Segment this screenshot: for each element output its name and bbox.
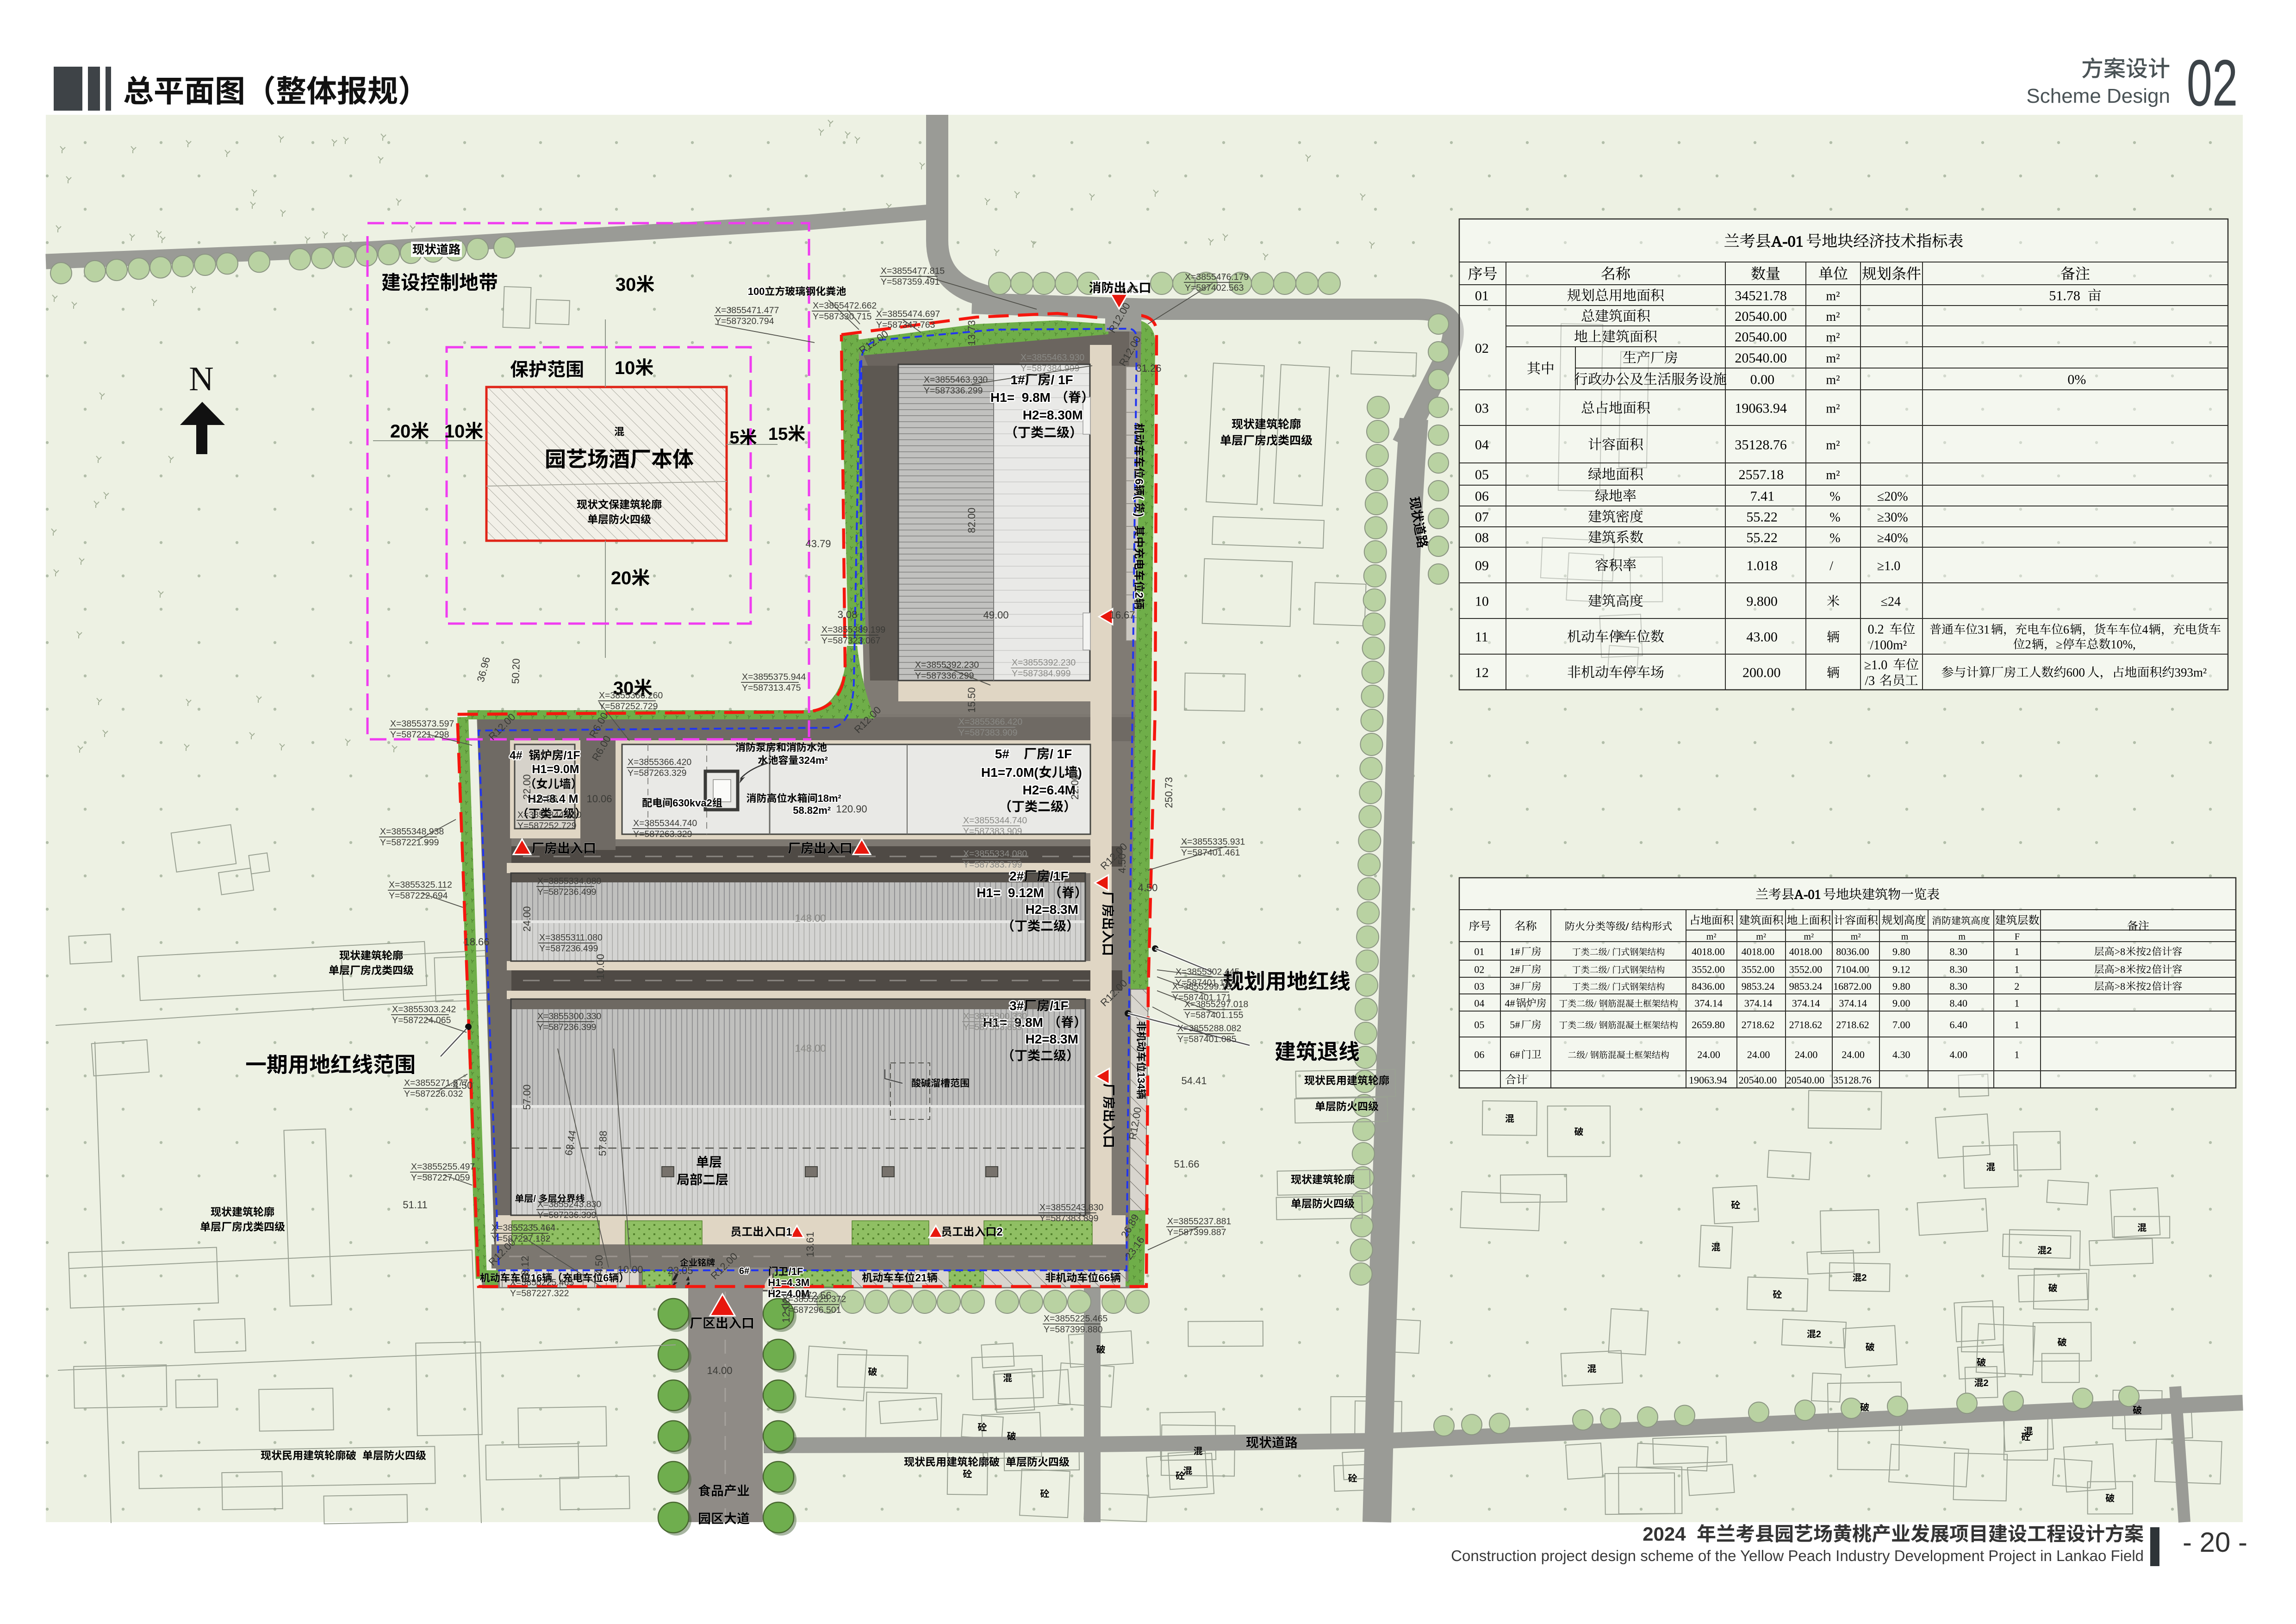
svg-text:/100m²: /100m² [1870, 638, 1907, 653]
svg-text:11: 11 [1475, 630, 1488, 645]
svg-text:24.00: 24.00 [1795, 1049, 1818, 1061]
svg-text:6#: 6# [1510, 1049, 1520, 1061]
svg-text:57.88: 57.88 [597, 1131, 609, 1156]
svg-text:Y=587383.899: Y=587383.899 [963, 1022, 1022, 1032]
svg-text:1: 1 [2014, 1019, 2019, 1031]
svg-text:4018.00: 4018.00 [1692, 946, 1725, 957]
svg-text:9853.24: 9853.24 [1742, 981, 1775, 992]
svg-text:5#: 5# [995, 747, 1017, 761]
svg-text:>8: >8 [2115, 946, 2125, 957]
svg-text:4.50: 4.50 [593, 1255, 605, 1275]
svg-text:19063.94: 19063.94 [1689, 1074, 1727, 1086]
svg-text:16872.00: 16872.00 [1833, 981, 1872, 992]
svg-text:2557.18: 2557.18 [1739, 467, 1784, 482]
svg-text:H2=8.3M: H2=8.3M [1026, 902, 1078, 917]
svg-text:H2=6.4M: H2=6.4M [1023, 783, 1076, 797]
svg-text:/: / [1829, 559, 1833, 574]
svg-text:8.30: 8.30 [1950, 964, 1968, 975]
svg-text:≥: ≥ [2056, 638, 2062, 651]
svg-text:): ) [1132, 513, 1145, 520]
svg-text:600: 600 [2066, 666, 2085, 680]
svg-text:m: m [1901, 932, 1909, 942]
svg-text:6: 6 [2063, 623, 2069, 637]
svg-text:Y=587236.399: Y=587236.399 [537, 1022, 596, 1032]
svg-text:≥1.0: ≥1.0 [1864, 658, 1887, 673]
svg-text:/: / [1607, 948, 1610, 957]
svg-text:15: 15 [768, 425, 788, 444]
svg-text:35128.76: 35128.76 [1833, 1074, 1872, 1086]
svg-text:374.14: 374.14 [1744, 998, 1773, 1009]
svg-text:%: % [1829, 531, 1840, 545]
svg-text:Y=587263.329: Y=587263.329 [633, 829, 692, 839]
svg-text:X=3855344.740: X=3855344.740 [963, 816, 1027, 826]
svg-text:4018.00: 4018.00 [1742, 946, 1775, 957]
svg-text:Y=587383.909: Y=587383.909 [963, 826, 1022, 837]
svg-text:1: 1 [2014, 946, 2019, 957]
svg-text:3#: 3# [1510, 981, 1520, 992]
svg-text:10: 10 [1475, 594, 1489, 609]
svg-text:9853.24: 9853.24 [1789, 981, 1823, 992]
svg-text:H1= 9.8M: H1= 9.8M [990, 390, 1051, 405]
svg-text:01: 01 [1474, 946, 1484, 957]
svg-text:X=3855375.944: X=3855375.944 [742, 672, 806, 682]
svg-text:Y=587383.909: Y=587383.909 [958, 728, 1017, 738]
svg-text:X=3855302.445: X=3855302.445 [1176, 967, 1239, 977]
svg-text:m²: m² [1706, 932, 1717, 942]
svg-text:18.66: 18.66 [464, 936, 489, 948]
svg-text:20540.00: 20540.00 [1735, 330, 1787, 345]
svg-text:X=3855392.230: X=3855392.230 [915, 660, 979, 670]
svg-text:Y=587221.298: Y=587221.298 [390, 730, 449, 740]
svg-text:6#: 6# [739, 1266, 749, 1276]
svg-text:14.00: 14.00 [707, 1365, 732, 1376]
svg-text:Y=587336.299: Y=587336.299 [924, 386, 983, 396]
svg-text:374.14: 374.14 [1839, 998, 1867, 1009]
svg-text:/1F: /1F [789, 1266, 803, 1277]
svg-text:7.41: 7.41 [1750, 489, 1775, 504]
svg-text:A-01: A-01 [1794, 888, 1821, 902]
svg-text:X=3855373.597: X=3855373.597 [390, 719, 454, 729]
svg-text:43.79: 43.79 [805, 538, 831, 550]
svg-text:8.30: 8.30 [1950, 981, 1968, 992]
svg-text:22.00: 22.00 [1069, 774, 1081, 800]
svg-text:30: 30 [616, 275, 636, 295]
svg-text:X=3855366.420: X=3855366.420 [628, 757, 691, 768]
svg-text:N: N [189, 360, 213, 398]
svg-text:10%,: 10%, [2111, 638, 2136, 651]
svg-text:50.20: 50.20 [510, 658, 522, 684]
svg-text:2: 2 [1132, 592, 1145, 598]
svg-text:16.96: 16.96 [532, 793, 557, 805]
svg-text:57.00: 57.00 [521, 1084, 533, 1110]
svg-text:5: 5 [729, 428, 739, 448]
svg-text:8436.00: 8436.00 [1692, 981, 1725, 992]
svg-text:4.30: 4.30 [1892, 1049, 1910, 1061]
svg-text:18.12: 18.12 [519, 1255, 531, 1281]
svg-text:0.00: 0.00 [1750, 372, 1775, 387]
svg-text:3#: 3# [1009, 999, 1024, 1013]
svg-text:Construction project design sc: Construction project design scheme of th… [1451, 1547, 2144, 1564]
svg-text:H1=7.0M(: H1=7.0M( [981, 765, 1039, 780]
svg-text:X=3855335.931: X=3855335.931 [1181, 837, 1245, 847]
svg-text:03: 03 [1474, 981, 1484, 992]
svg-text:9.45: 9.45 [1119, 284, 1139, 295]
svg-text:58.82m²: 58.82m² [793, 805, 831, 816]
svg-text:20: 20 [611, 568, 632, 588]
svg-text:20: 20 [390, 421, 411, 442]
svg-text:m²: m² [1826, 331, 1840, 345]
svg-text:2718.62: 2718.62 [1742, 1019, 1775, 1031]
svg-text:172.56: 172.56 [800, 1290, 831, 1301]
svg-text:Y=587399.880: Y=587399.880 [1044, 1324, 1103, 1335]
svg-text:Y=587236.399: Y=587236.399 [537, 1210, 596, 1220]
svg-text:8.30: 8.30 [1950, 946, 1968, 957]
svg-text:393m²: 393m² [2175, 666, 2207, 680]
svg-text:X=3855471.477: X=3855471.477 [715, 306, 779, 316]
svg-text:Y=587252.729: Y=587252.729 [517, 821, 576, 831]
svg-text:Y=587402.563: Y=587402.563 [1185, 283, 1244, 293]
svg-text:4.00: 4.00 [1950, 1049, 1968, 1061]
svg-text:X=3855300.330: X=3855300.330 [963, 1012, 1027, 1022]
svg-text:A-01: A-01 [1771, 233, 1804, 250]
svg-text:>8: >8 [2115, 981, 2125, 992]
svg-text:%: % [1829, 511, 1840, 525]
svg-text:2#: 2# [1009, 869, 1024, 883]
svg-text:7.00: 7.00 [1892, 1019, 1910, 1031]
svg-text:23.05: 23.05 [667, 1265, 693, 1276]
svg-text:X=3855344.740: X=3855344.740 [633, 818, 697, 829]
svg-text:2: 2 [1816, 1330, 1821, 1340]
svg-text:2: 2 [2014, 981, 2019, 992]
svg-text:2: 2 [1983, 1378, 1988, 1388]
svg-text:Y=587330.715: Y=587330.715 [813, 312, 872, 322]
svg-text:2#: 2# [1510, 964, 1520, 975]
svg-text:2: 2 [1861, 1273, 1867, 1283]
svg-text:≤24: ≤24 [1881, 595, 1901, 609]
svg-text:0%: 0% [2067, 372, 2086, 387]
svg-text:24.00: 24.00 [521, 906, 533, 931]
svg-text:m²: m² [1826, 468, 1840, 482]
svg-text:2718.62: 2718.62 [1789, 1019, 1823, 1031]
svg-text:≥1.0: ≥1.0 [1877, 559, 1900, 574]
svg-text:/: / [1607, 982, 1610, 992]
svg-text:1: 1 [2014, 998, 2019, 1009]
svg-text:X=3855243.830: X=3855243.830 [537, 1199, 601, 1210]
svg-text:/: / [1626, 921, 1629, 932]
svg-text:16.67: 16.67 [1109, 609, 1135, 621]
svg-text:07: 07 [1475, 510, 1489, 525]
svg-text:08: 08 [1475, 530, 1489, 545]
svg-text:10: 10 [444, 421, 465, 442]
svg-text:/ 1F: / 1F [1051, 373, 1073, 387]
svg-text:18m²: 18m² [818, 793, 841, 804]
svg-text:20540.00: 20540.00 [1735, 350, 1787, 366]
svg-text:m²: m² [1826, 351, 1840, 366]
svg-text:m²: m² [1826, 373, 1840, 387]
svg-text:X=3855225.465: X=3855225.465 [1044, 1314, 1108, 1324]
svg-text:Y=587401.461: Y=587401.461 [1181, 848, 1240, 858]
svg-text:H2=8.30M: H2=8.30M [1023, 408, 1083, 422]
svg-text:Y=587227.182: Y=587227.182 [492, 1234, 550, 1244]
svg-text:H2=8.3M: H2=8.3M [1026, 1032, 1078, 1046]
svg-text:Y=587401.085: Y=587401.085 [1177, 1034, 1237, 1044]
svg-text:X=3855235.464: X=3855235.464 [492, 1223, 555, 1233]
svg-text:09: 09 [1475, 558, 1489, 574]
svg-text:20540.00: 20540.00 [1739, 1074, 1777, 1086]
svg-text:/: / [533, 1194, 536, 1204]
svg-text:02: 02 [2187, 46, 2238, 119]
svg-text:Y=587227.322: Y=587227.322 [510, 1288, 569, 1299]
svg-text:3552.00: 3552.00 [1692, 964, 1725, 975]
svg-text:>8: >8 [2115, 964, 2125, 975]
svg-text:m²: m² [1826, 289, 1840, 304]
svg-text:/: / [1594, 1021, 1597, 1031]
svg-text:4.50: 4.50 [453, 1080, 473, 1091]
svg-text:m²: m² [1804, 932, 1814, 942]
svg-text:/ 1F: / 1F [1050, 747, 1072, 761]
svg-text:4: 4 [2142, 623, 2148, 637]
svg-text:Y=587399.887: Y=587399.887 [1167, 1227, 1226, 1237]
svg-text:Y=587383.899: Y=587383.899 [1039, 1213, 1098, 1224]
svg-text:/: / [1594, 999, 1597, 1009]
svg-text:/3: /3 [1865, 674, 1875, 688]
svg-text:3552.00: 3552.00 [1742, 964, 1775, 975]
svg-text:H1=9.0M: H1=9.0M [532, 763, 579, 776]
svg-text:7104.00: 7104.00 [1836, 964, 1869, 975]
svg-text:X=3855344.960: X=3855344.960 [517, 810, 581, 820]
svg-text:2: 2 [2146, 946, 2151, 957]
svg-text:2718.62: 2718.62 [1836, 1019, 1869, 1031]
svg-text:Y=587263.329: Y=587263.329 [628, 768, 686, 778]
svg-text:4#: 4# [510, 749, 526, 762]
svg-text:H1=4.3M: H1=4.3M [768, 1277, 809, 1288]
svg-text:06: 06 [1474, 1049, 1484, 1061]
svg-text:Y=587313.475: Y=587313.475 [742, 683, 801, 693]
svg-text:34521.78: 34521.78 [1735, 288, 1787, 304]
svg-text:13.61: 13.61 [804, 1231, 816, 1257]
svg-text:2: 2 [2146, 981, 2151, 992]
svg-text:43.00: 43.00 [1746, 630, 1778, 645]
svg-text:35128.76: 35128.76 [1735, 437, 1787, 453]
svg-text:9.12: 9.12 [1892, 964, 1910, 975]
svg-text:24.00: 24.00 [1747, 1049, 1770, 1061]
svg-text:9.80: 9.80 [1892, 946, 1910, 957]
svg-text:m²: m² [1826, 438, 1840, 453]
svg-text:24.00: 24.00 [1697, 1049, 1720, 1061]
svg-text:H1= 9.12M: H1= 9.12M [977, 886, 1044, 900]
svg-text:X=3855300.330: X=3855300.330 [537, 1012, 601, 1022]
svg-text:1: 1 [786, 1226, 792, 1238]
svg-text:m²: m² [1756, 932, 1766, 942]
svg-text:10.00: 10.00 [595, 954, 606, 979]
svg-text:31.26: 31.26 [1136, 362, 1161, 374]
svg-text:04: 04 [1475, 437, 1489, 453]
svg-text:51.78: 51.78 [2049, 288, 2080, 304]
svg-text:02: 02 [1475, 341, 1489, 356]
svg-text:02: 02 [1474, 964, 1484, 975]
svg-text:Y=587384.999: Y=587384.999 [1012, 668, 1070, 679]
svg-text:374.14: 374.14 [1792, 998, 1820, 1009]
svg-text:X=3855348.938: X=3855348.938 [380, 827, 444, 837]
svg-text:21: 21 [915, 1272, 927, 1284]
svg-text:m²: m² [1826, 402, 1840, 416]
svg-text:X=3855334.080: X=3855334.080 [537, 876, 601, 887]
svg-text:X=3855472.662: X=3855472.662 [813, 301, 877, 311]
svg-text:3.08: 3.08 [838, 609, 858, 620]
svg-text:10: 10 [615, 358, 635, 378]
svg-text:X=3855476.179: X=3855476.179 [1185, 272, 1249, 282]
svg-text:X=3855255.497: X=3855255.497 [411, 1162, 475, 1172]
svg-text:/1F: /1F [1050, 869, 1068, 883]
svg-text:X=3855366.420: X=3855366.420 [958, 717, 1022, 727]
svg-text:49.00: 49.00 [983, 609, 1008, 621]
svg-text:2024: 2024 [1643, 1523, 1691, 1545]
svg-text:X=3855299.137: X=3855299.137 [1172, 982, 1236, 992]
svg-text:13.73: 13.73 [966, 320, 977, 345]
svg-text:1#: 1# [1010, 373, 1025, 387]
svg-text:630kva2: 630kva2 [672, 797, 712, 809]
svg-text:04: 04 [1474, 998, 1484, 1009]
svg-text:51.11: 51.11 [403, 1199, 427, 1211]
svg-text:19063.94: 19063.94 [1735, 401, 1787, 416]
svg-text:X=3855366.260: X=3855366.260 [599, 691, 663, 701]
svg-text:/: / [1607, 966, 1610, 975]
svg-text:324m²: 324m² [798, 755, 828, 766]
svg-text:66: 66 [1098, 1272, 1110, 1284]
svg-text:12: 12 [1475, 665, 1489, 681]
svg-text:1#: 1# [1510, 946, 1520, 957]
svg-text:9.00: 9.00 [1892, 998, 1910, 1009]
svg-text:22.00: 22.00 [521, 774, 533, 800]
svg-text:6.40: 6.40 [1950, 1019, 1968, 1031]
svg-text:Y=587252.729: Y=587252.729 [599, 701, 658, 712]
svg-text:82.00: 82.00 [966, 507, 977, 533]
svg-text:05: 05 [1475, 467, 1489, 482]
svg-text:1.018: 1.018 [1746, 558, 1778, 574]
svg-text:X=3855474.697: X=3855474.697 [876, 309, 940, 319]
svg-text:05: 05 [1474, 1019, 1484, 1031]
svg-text:2: 2 [2025, 638, 2031, 651]
svg-text:1: 1 [2014, 964, 2019, 975]
svg-text:X=3855392.230: X=3855392.230 [1012, 658, 1076, 668]
svg-text:X=3855311.080: X=3855311.080 [539, 933, 603, 943]
svg-text:%: % [1829, 490, 1840, 504]
svg-text:148.00: 148.00 [795, 1043, 826, 1054]
svg-text:12.00: 12.00 [780, 1297, 792, 1323]
svg-text:X=3855463.930: X=3855463.930 [1020, 353, 1084, 363]
svg-text:Y=587336.299: Y=587336.299 [915, 671, 974, 681]
svg-text:/1F: /1F [1050, 999, 1068, 1013]
svg-text:4018.00: 4018.00 [1789, 946, 1823, 957]
svg-text:51.66: 51.66 [1174, 1158, 1199, 1170]
svg-text:0.2: 0.2 [1868, 623, 1884, 637]
svg-text:- 20 -: - 20 - [2183, 1527, 2247, 1558]
svg-text:m²: m² [1851, 932, 1861, 942]
svg-text:6: 6 [1132, 479, 1145, 485]
svg-text:03: 03 [1475, 401, 1489, 416]
svg-text:8036.00: 8036.00 [1836, 946, 1869, 957]
svg-text:134: 134 [1135, 1072, 1147, 1089]
svg-text:9.800: 9.800 [1746, 594, 1778, 609]
svg-text:/1F: /1F [564, 749, 580, 762]
svg-text:≤20%: ≤20% [1877, 490, 1908, 504]
svg-text:X=3855325.112: X=3855325.112 [389, 880, 452, 890]
svg-text:Y=587383.799: Y=587383.799 [963, 860, 1022, 870]
svg-text:8.40: 8.40 [1950, 998, 1968, 1009]
svg-text:X=3855477.815: X=3855477.815 [881, 266, 945, 276]
svg-text:4.50: 4.50 [1138, 882, 1158, 893]
svg-text:Y=587401.155: Y=587401.155 [1184, 1010, 1244, 1020]
svg-text:m: m [1958, 932, 1966, 942]
svg-text:250.73: 250.73 [1163, 777, 1175, 808]
svg-text:3552.00: 3552.00 [1789, 964, 1823, 975]
svg-text:1: 1 [2014, 1049, 2019, 1061]
svg-text:31: 31 [1978, 623, 1990, 637]
svg-text:X=3855334.080: X=3855334.080 [963, 849, 1027, 859]
svg-text:Y=587236.499: Y=587236.499 [537, 887, 596, 897]
svg-text:148.00: 148.00 [795, 912, 826, 924]
svg-text:Y=587236.499: Y=587236.499 [539, 943, 598, 954]
svg-text:01: 01 [1475, 288, 1489, 304]
svg-text:/: / [1585, 1051, 1588, 1061]
svg-text:Y=587320.794: Y=587320.794 [715, 316, 774, 326]
svg-text:120.90: 120.90 [836, 803, 867, 815]
svg-text:(: ( [1132, 496, 1145, 500]
svg-text:55.22: 55.22 [1746, 510, 1778, 525]
svg-text:20540.00: 20540.00 [1735, 309, 1787, 324]
svg-text:06: 06 [1475, 489, 1489, 504]
svg-text:≥30%: ≥30% [1877, 511, 1908, 525]
svg-text:≥40%: ≥40% [1877, 531, 1908, 545]
svg-text:Scheme Design: Scheme Design [2026, 85, 2170, 107]
svg-text:X=3855243.830: X=3855243.830 [1039, 1203, 1103, 1213]
svg-text:200.00: 200.00 [1742, 665, 1781, 681]
svg-text:m²: m² [1826, 310, 1840, 324]
svg-text:54.41: 54.41 [1181, 1075, 1207, 1087]
svg-text:2: 2 [2146, 964, 2151, 975]
svg-text:5#: 5# [1510, 1019, 1520, 1031]
svg-text:X=3855389.199: X=3855389.199 [821, 625, 885, 635]
svg-text:X=3855303.242: X=3855303.242 [392, 1005, 456, 1015]
svg-text:374.14: 374.14 [1694, 998, 1723, 1009]
svg-text:9.80: 9.80 [1892, 981, 1910, 992]
svg-text:15.50: 15.50 [966, 687, 977, 712]
svg-text:X=3855297.018: X=3855297.018 [1184, 999, 1248, 1010]
svg-text:55.22: 55.22 [1746, 530, 1778, 545]
svg-text:X=3855237.881: X=3855237.881 [1167, 1217, 1231, 1227]
svg-text:F: F [2015, 932, 2020, 942]
svg-text:20540.00: 20540.00 [1786, 1074, 1825, 1086]
svg-text:4#: 4# [1505, 998, 1515, 1009]
svg-text:2: 2 [2047, 1246, 2052, 1256]
svg-text:100: 100 [748, 286, 765, 297]
svg-text:2659.80: 2659.80 [1692, 1019, 1725, 1031]
svg-text:2: 2 [996, 1226, 1002, 1238]
svg-text:24.00: 24.00 [1842, 1049, 1865, 1061]
svg-text:10.06: 10.06 [586, 793, 612, 805]
svg-text:Y=587323.067: Y=587323.067 [821, 636, 880, 646]
svg-text:Y=587221.999: Y=587221.999 [380, 837, 439, 848]
